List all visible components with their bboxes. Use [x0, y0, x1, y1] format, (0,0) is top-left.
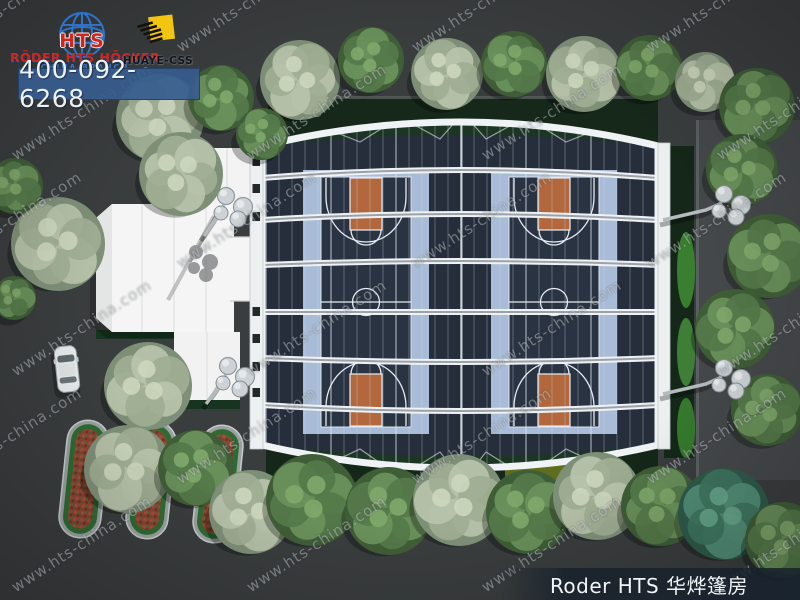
caption-bar: Roder HTS 华烨篷房	[498, 568, 800, 600]
phone-number: 400-092-6268	[19, 55, 199, 113]
curb-line	[696, 120, 699, 480]
tent-right-sidewall	[658, 143, 670, 449]
caption-text: Roder HTS 华烨篷房	[550, 570, 748, 599]
sports-tent	[250, 108, 670, 488]
huaye-flag-icon	[136, 12, 180, 54]
phone-banner: 400-092-6268	[18, 68, 200, 100]
rendering-viewport: www.hts-china.comwww.hts-china.comwww.ht…	[0, 0, 800, 600]
hts-acronym: HTS	[48, 30, 116, 52]
